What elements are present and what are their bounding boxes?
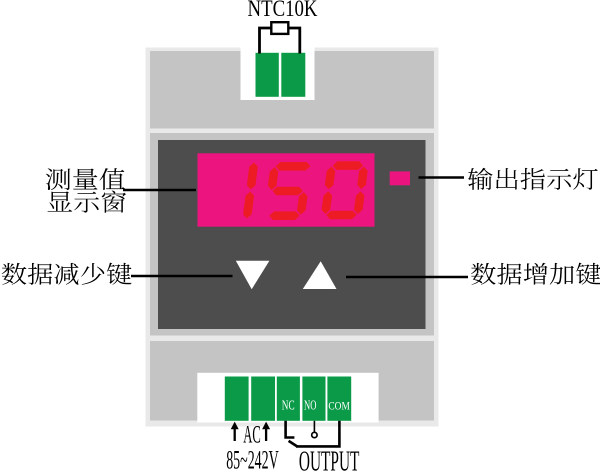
svg-text:85~242V: 85~242V bbox=[226, 446, 279, 472]
svg-text:NO: NO bbox=[304, 397, 317, 412]
svg-text:AC: AC bbox=[243, 422, 260, 449]
svg-text:NC: NC bbox=[282, 397, 295, 412]
svg-text:COM: COM bbox=[328, 398, 350, 412]
svg-text:OUTPUT: OUTPUT bbox=[299, 445, 360, 472]
svg-text:NTC10K: NTC10K bbox=[248, 0, 318, 21]
